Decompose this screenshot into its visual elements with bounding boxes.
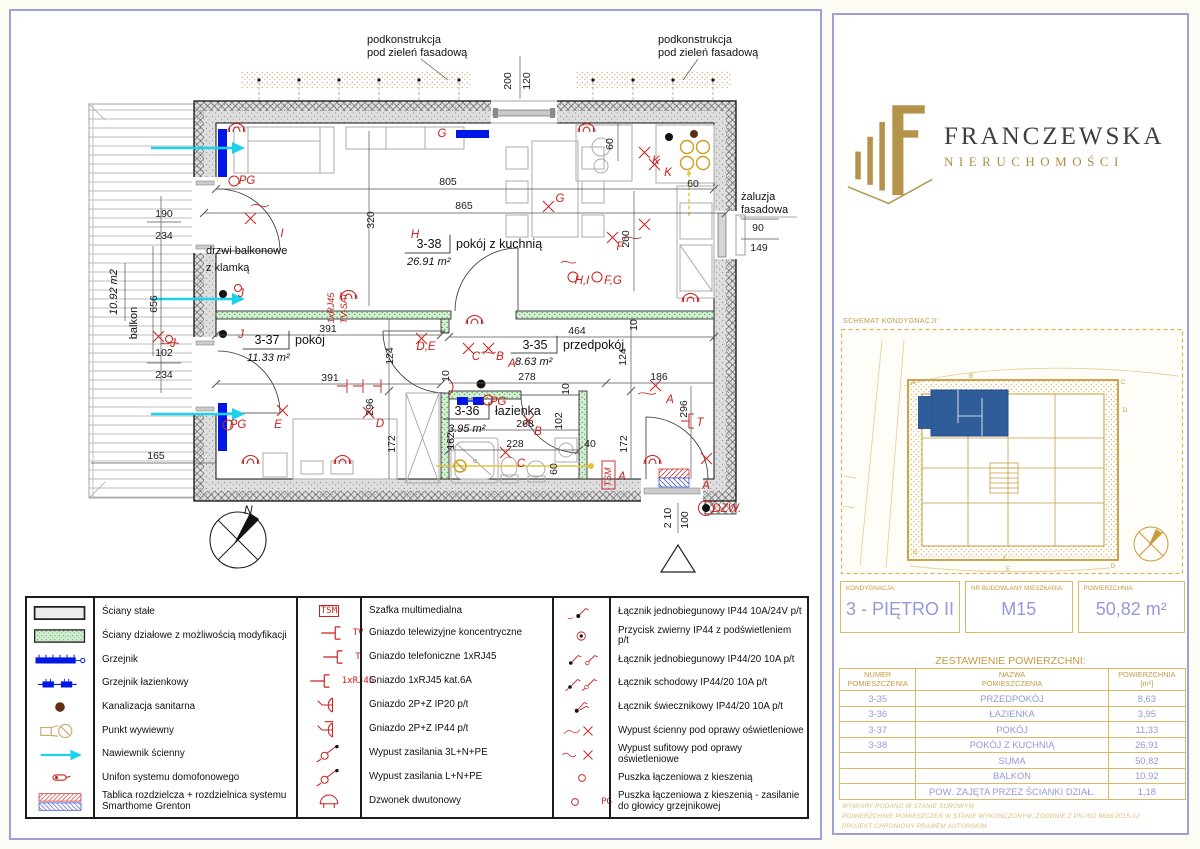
- svg-text:D: D: [1111, 564, 1116, 570]
- circuit-label: G: [438, 128, 447, 140]
- partition-walls: [216, 248, 714, 479]
- facade-greenery: [241, 59, 731, 101]
- legend-item: 1xRJ45 Gniazdo 1xRJ45 kat.6A: [298, 670, 552, 692]
- brand-name: FRANCZEWSKA: [944, 123, 1165, 151]
- info-label: KONDYGNACJA:: [846, 585, 954, 592]
- brand-building-icon: [846, 87, 934, 205]
- legend-label: Nawiewnik ścienny: [93, 749, 188, 760]
- legend-item: Grzejnik łazienkowy: [27, 673, 296, 695]
- circuit-label: E: [274, 419, 282, 431]
- circuit-label: 1xRJ45: [326, 292, 336, 324]
- legend-item: Tablica rozdzielcza + rozdzielnica syste…: [27, 791, 296, 813]
- note-zaluzja: żaluzja: [741, 191, 776, 203]
- legend-symbol: [27, 625, 93, 647]
- dim-text: 278: [518, 371, 536, 383]
- circuit-label: I: [280, 228, 284, 240]
- info-value: 50,82 m²: [1084, 599, 1179, 620]
- legend-label: Gniazdo telewizyjne koncentryczne: [360, 628, 525, 639]
- note-balcony-door: drzwi balkonowe: [206, 245, 287, 257]
- legend-item: Wypust zasilania L+N+PE: [298, 767, 552, 789]
- dim-text: 464: [568, 325, 586, 337]
- dim-text: 228: [506, 438, 524, 450]
- table-row: 3-37 POKÓJ 11,33: [840, 722, 1186, 738]
- unit-info: KONDYGNACJA: 3 - PIĘTRO II NR BUDOWLANY …: [840, 581, 1185, 633]
- dim-text: 60: [604, 138, 616, 150]
- info-label: POWIERZCHNIA:: [1084, 585, 1179, 592]
- table-row: BALKON 10,92: [840, 768, 1186, 784]
- legend-label: Tablica rozdzielcza + rozdzielnica syste…: [93, 791, 296, 813]
- dim-text: 40: [584, 438, 596, 450]
- table-row: 3-35 PRZEDPOKÓJ 8,63: [840, 691, 1186, 707]
- circuit-label: A: [701, 480, 710, 492]
- legend-label: Unifon systemu domofonowego: [93, 773, 242, 784]
- area-table: NUMER POMIESZCZENIA NAZWA POMIESZCZENIA …: [839, 668, 1186, 800]
- dim-text: 10: [440, 370, 452, 382]
- highlighted-apartment: [931, 390, 1008, 436]
- legend-symbol: PG: [554, 791, 609, 813]
- info-box-floor: KONDYGNACJA: 3 - PIĘTRO II: [840, 581, 960, 633]
- legend-label: Wypust sufitowy pod oprawy oświetleniowe: [609, 744, 807, 766]
- room-number: 3-36: [454, 404, 479, 418]
- balcony-area: 10.92 m2: [108, 269, 120, 315]
- circuit-label: PG: [230, 419, 247, 431]
- legend-item: Wypust zasilania 3L+N+PE: [298, 743, 552, 765]
- info-value: M15: [971, 599, 1066, 620]
- circuit-label: A: [617, 471, 626, 483]
- legend-column-2: TSM Szafka multimedialna TV Gniazdo tele…: [298, 598, 554, 817]
- legend-item: T Gniazdo telefoniczne 1xRJ45: [298, 646, 552, 668]
- table-header: NUMER POMIESZCZENIA: [840, 669, 916, 691]
- room-name-cell: POKÓJ: [916, 722, 1108, 738]
- legend-item: Łącznik jednobiegunowy IP44 10A/24V p/t: [554, 602, 807, 624]
- circuit-label: C: [472, 351, 481, 363]
- legend-item: Ściany działowe z możliwością modyfikacj…: [27, 625, 296, 647]
- dim-text: 200: [502, 72, 514, 90]
- room-name: przedpokój: [563, 338, 624, 352]
- legend-symbol: [554, 767, 609, 789]
- room-area-cell: 10,92: [1108, 768, 1185, 784]
- entrance-marker: [661, 545, 695, 572]
- circuit-label: F,G: [604, 275, 622, 287]
- circuit-label: K: [664, 167, 673, 179]
- room-number-cell: 3-37: [840, 722, 916, 738]
- dim-text: 124: [384, 347, 396, 365]
- dim-text: 320: [365, 211, 377, 229]
- legend-label: Gniazdo telefoniczne 1xRJ45: [360, 652, 499, 663]
- room-area-cell: 1,18: [1108, 784, 1185, 800]
- legend-label: Ściany działowe z możliwością modyfikacj…: [93, 631, 290, 642]
- building-outline: [908, 380, 1118, 560]
- dim-text: 60: [687, 178, 699, 190]
- room-area: 26.91 m²: [406, 256, 451, 268]
- table-row: SUMA 50,82: [840, 753, 1186, 769]
- legend-symbol: [27, 767, 93, 789]
- disclaimer-line: POWIERZCHNIE POMIESZCZEŃ W STANIE WYKOŃC…: [842, 812, 1140, 822]
- legend-label: Łącznik schodowy IP44/20 10A p/t: [609, 678, 770, 689]
- room-name-cell: POW. ZAJĘTA PRZEZ ŚCIANKI DZIAŁ.: [916, 784, 1108, 800]
- legend-item: Łącznik jednobiegunowy IP44/20 10A p/t: [554, 649, 807, 671]
- legend-item: Grzejnik: [27, 649, 296, 671]
- room-area-cell: 11,33: [1108, 722, 1185, 738]
- dim-text: 149: [750, 242, 768, 254]
- legend-label: Gniazdo 2P+Z IP20 p/t: [360, 700, 471, 711]
- svg-text:G: G: [913, 550, 918, 556]
- room-number: 3-35: [522, 338, 547, 352]
- legend-label: Kanalizacja sanitarna: [93, 702, 198, 713]
- circuit-label: D,E: [416, 341, 436, 353]
- dim-text: 165: [147, 450, 165, 462]
- legend-label: Puszka łączeniowa z kieszenią: [609, 773, 756, 784]
- circuit-label: J: [237, 329, 244, 341]
- balcony-label: balkon: [128, 307, 140, 339]
- legend-symbol: [298, 694, 360, 716]
- note-podkonstrukcja: pod zieleń fasadową: [658, 47, 759, 59]
- dim-text: 102: [553, 412, 565, 430]
- dim-text: 186: [650, 371, 668, 383]
- note-podkonstrukcja: podkonstrukcja: [658, 34, 733, 46]
- legend-symbol: [298, 767, 360, 789]
- legend-item: Unifon systemu domofonowego: [27, 767, 296, 789]
- table-header: POWIERZCHNIA [m²]: [1108, 669, 1185, 691]
- legend-item: TSM Szafka multimedialna: [298, 602, 552, 620]
- legend-symbol: [554, 625, 609, 647]
- table-row: 3-38 POKÓJ Z KUCHNIĄ 26,91: [840, 737, 1186, 753]
- legend-column-3: Łącznik jednobiegunowy IP44 10A/24V p/t …: [554, 598, 807, 817]
- room-number-cell: 3-38: [840, 737, 916, 753]
- legend-label: Gniazdo 2P+Z IP44 p/t: [360, 724, 471, 735]
- legend-symbol: [27, 720, 93, 742]
- dim-text: 2 10: [662, 508, 674, 529]
- legend-label: Puszka łączeniowa z kieszenią - zasilani…: [609, 791, 807, 813]
- svg-text:E: E: [1006, 567, 1010, 573]
- dim-text: 234: [155, 369, 173, 381]
- svg-text:F: F: [1003, 556, 1007, 562]
- dim-text: 10: [560, 383, 572, 395]
- circuit-label: C: [517, 458, 526, 470]
- legend-symbol: [27, 791, 93, 813]
- note-podkonstrukcja: podkonstrukcja: [367, 34, 442, 46]
- dim-text: 172: [386, 435, 398, 453]
- legend: Ściany stałe Ściany działowe z możliwośc…: [25, 596, 809, 819]
- room-number-cell: [840, 768, 916, 784]
- room-number-cell: [840, 753, 916, 769]
- info-label: NR BUDOWLANY MIESZKANIA:: [971, 585, 1066, 592]
- legend-label: Grzejnik łazienkowy: [93, 678, 192, 689]
- info-sheet: FRANCZEWSKA NIERUCHOMOŚCI SCHEMAT KONDYG…: [832, 13, 1189, 835]
- legend-symbol: [27, 602, 93, 624]
- balcony: [89, 104, 194, 498]
- dim-text: 865: [455, 200, 473, 212]
- legend-symbol: [554, 720, 609, 742]
- electrical-symbols: [153, 124, 712, 490]
- note-balcony-door: z klamką: [206, 262, 250, 274]
- circuit-label: J: [169, 338, 176, 350]
- circuit-label: A: [665, 394, 674, 406]
- legend-symbol: TSM: [298, 605, 360, 617]
- legend-item: Gniazdo 2P+Z IP44 p/t: [298, 719, 552, 741]
- circuit-label: B: [534, 426, 542, 438]
- legend-label: Wypust zasilania L+N+PE: [360, 772, 485, 783]
- legend-label: Łącznik jednobiegunowy IP44/20 10A p/t: [609, 655, 797, 666]
- disclaimer: WYMIARY PODANO W STANIE SUROWYM POWIERZC…: [842, 802, 1140, 831]
- brand-subtitle: NIERUCHOMOŚCI: [944, 154, 1165, 170]
- area-table-title: ZESTAWIENIE POWIERZCHNI:: [834, 655, 1187, 667]
- legend-label: Wypust ścienny pod oprawy oświetleniowe: [609, 726, 807, 737]
- legend-label: Łącznik jednobiegunowy IP44 10A/24V p/t: [609, 607, 805, 618]
- info-value: 3 - PIĘTRO II: [846, 599, 954, 620]
- circuit-label: DZW.: [713, 503, 742, 515]
- dim-text: 172: [618, 435, 630, 453]
- legend-symbol: [298, 791, 360, 813]
- room-name: pokój: [295, 333, 325, 347]
- room-name: łazienka: [495, 404, 541, 418]
- circuit-label: TV-SAT: [339, 291, 349, 324]
- circuit-label: TSM: [603, 467, 613, 487]
- legend-symbol: [298, 719, 360, 741]
- legend-item: Kanalizacja sanitarna: [27, 696, 296, 718]
- legend-symbol: [27, 649, 93, 671]
- circuit-label: F: [616, 241, 624, 253]
- svg-text:B: B: [969, 374, 973, 380]
- info-box-unit-number: NR BUDOWLANY MIESZKANIA: M15: [965, 581, 1072, 633]
- circuit-label: J: [237, 288, 244, 300]
- legend-symbol: TV: [298, 622, 360, 644]
- room-area-cell: 26,91: [1108, 737, 1185, 753]
- dim-text: 60: [548, 463, 560, 475]
- dim-text: 90: [752, 222, 764, 234]
- dim-text: 296: [678, 400, 690, 418]
- legend-item: Gniazdo 2P+Z IP20 p/t: [298, 694, 552, 716]
- disclaimer-line: PROJEKT CHRONIONY PRAWEM AUTORSKIM: [842, 822, 1140, 832]
- legend-symbol: [554, 696, 609, 718]
- dim-text: 10: [628, 319, 640, 331]
- legend-symbol: [554, 673, 609, 695]
- room-number-cell: 3-35: [840, 691, 916, 707]
- legend-label: Punkt wywiewny: [93, 726, 177, 737]
- legend-symbol: [298, 743, 360, 765]
- legend-item: PG Puszka łączeniowa z kieszenią - zasil…: [554, 791, 807, 813]
- compass: N: [210, 503, 266, 568]
- legend-item: Łącznik świecznikowy IP44/20 10A p/t: [554, 696, 807, 718]
- room-name-cell: SUMA: [916, 753, 1108, 769]
- legend-symbol: 1xRJ45: [298, 670, 360, 692]
- dim-text: 391: [321, 372, 339, 384]
- circuit-label: PG: [239, 175, 256, 187]
- disclaimer-line: WYMIARY PODANO W STANIE SUROWYM: [842, 802, 1140, 812]
- legend-item: Nawiewnik ścienny: [27, 744, 296, 766]
- legend-item: Ściany stałe: [27, 602, 296, 624]
- dim-text: 656: [148, 295, 160, 313]
- legend-symbol: [554, 602, 609, 624]
- room-name: pokój z kuchnią: [456, 237, 542, 251]
- circuit-label: H,I: [575, 275, 591, 287]
- room-name-cell: ŁAZIENKA: [916, 706, 1108, 722]
- legend-symbol: [27, 744, 93, 766]
- dim-text: 296: [364, 398, 376, 416]
- room-area: 8.63 m²: [515, 356, 553, 368]
- room-area-cell: 3,95: [1108, 706, 1185, 722]
- circuit-label: G: [556, 193, 565, 205]
- legend-label: Wypust zasilania 3L+N+PE: [360, 748, 491, 759]
- legend-item: Wypust sufitowy pod oprawy oświetleniowe: [554, 744, 807, 766]
- legend-symbol: [27, 696, 93, 718]
- note-podkonstrukcja: pod zieleń fasadową: [367, 47, 468, 59]
- room-name-cell: PRZEDPOKÓJ: [916, 691, 1108, 707]
- table-row: 3-36 ŁAZIENKA 3,95: [840, 706, 1186, 722]
- room-number-cell: [840, 784, 916, 800]
- legend-item: Przycisk zwierny IP44 z podświetleniem p…: [554, 625, 807, 647]
- info-box-area: POWIERZCHNIA: 50,82 m²: [1078, 581, 1185, 633]
- svg-text:A: A: [911, 380, 915, 386]
- floor-location-schematic: A B C D G F E D: [840, 328, 1185, 576]
- legend-item: Dzwonek dwutonowy: [298, 791, 552, 813]
- table-header: NAZWA POMIESZCZENIA: [916, 669, 1108, 691]
- legend-symbol: [27, 673, 93, 695]
- svg-text:D: D: [1123, 408, 1128, 414]
- legend-label: Szafka multimedialna: [360, 606, 465, 617]
- legend-label: Grzejnik: [93, 655, 141, 666]
- circuit-label: K: [652, 155, 661, 167]
- dim-text: 100: [679, 511, 691, 529]
- legend-item: Łącznik schodowy IP44/20 10A p/t: [554, 673, 807, 695]
- dim-text: 805: [439, 176, 457, 188]
- legend-label: Ściany stałe: [93, 607, 158, 618]
- room-name-cell: POKÓJ Z KUCHNIĄ: [916, 737, 1108, 753]
- room-area-cell: 8,63: [1108, 691, 1185, 707]
- legend-symbol: T: [298, 646, 360, 668]
- floor-plan: 200 120 805 865 320 60 60 260 90 149 190…: [11, 11, 824, 595]
- room-number: 3-38: [416, 237, 441, 251]
- legend-label: Dzwonek dwutonowy: [360, 796, 464, 807]
- legend-column-1: Ściany stałe Ściany działowe z możliwośc…: [27, 598, 298, 817]
- legend-symbol: [554, 649, 609, 671]
- circuit-label: T: [696, 417, 704, 429]
- brand-logo: FRANCZEWSKA NIERUCHOMOŚCI: [846, 87, 1165, 205]
- legend-label: Gniazdo 1xRJ45 kat.6A: [360, 676, 475, 687]
- legend-item: Wypust ścienny pod oprawy oświetleniowe: [554, 720, 807, 742]
- dim-text: 120: [521, 72, 533, 90]
- legend-label: Łącznik świecznikowy IP44/20 10A p/t: [609, 702, 786, 713]
- dim-text: 190: [155, 208, 173, 220]
- dim-text: 234: [155, 230, 173, 242]
- table-row: POW. ZAJĘTA PRZEZ ŚCIANKI DZIAŁ. 1,18: [840, 784, 1186, 800]
- room-number: 3-37: [254, 333, 279, 347]
- legend-label: Przycisk zwierny IP44 z podświetleniem p…: [609, 626, 807, 648]
- room-number-cell: 3-36: [840, 706, 916, 722]
- room-area-cell: 50,82: [1108, 753, 1185, 769]
- svg-text:C: C: [1121, 380, 1126, 386]
- legend-symbol: [554, 744, 609, 766]
- legend-item: Puszka łączeniowa z kieszenią: [554, 767, 807, 789]
- distribution-board: [659, 469, 689, 487]
- legend-item: TV Gniazdo telewizyjne koncentryczne: [298, 622, 552, 644]
- room-area: 11.33 m²: [247, 352, 290, 364]
- dim-text: 268: [516, 418, 534, 430]
- plan-sheet: 200 120 805 865 320 60 60 260 90 149 190…: [9, 9, 822, 840]
- north-label: N: [244, 503, 253, 517]
- legend-item: Punkt wywiewny: [27, 720, 296, 742]
- room-area: 3.95 m²: [448, 423, 486, 435]
- circuit-label: B: [496, 351, 504, 363]
- schematic-title: SCHEMAT KONDYGNACJI:: [843, 318, 939, 325]
- room-name-cell: BALKON: [916, 768, 1108, 784]
- circuit-label: D: [376, 418, 384, 430]
- note-zaluzja: fasadowa: [741, 204, 789, 216]
